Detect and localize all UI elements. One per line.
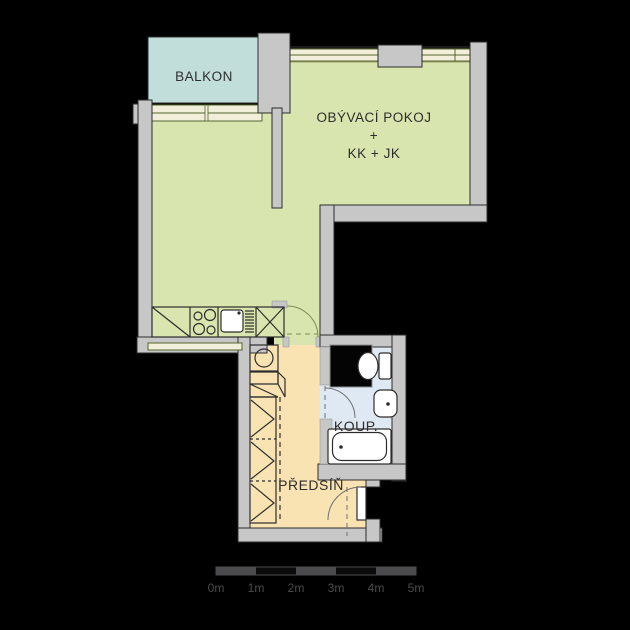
- bathtub-icon: [328, 429, 391, 464]
- living-room-label-line3: KK + JK: [348, 146, 401, 161]
- scale-label-1m: 1m: [248, 581, 265, 595]
- wall-living-bottom: [320, 205, 487, 222]
- wall-divider: [272, 108, 282, 208]
- door-jamb-left: [283, 337, 289, 347]
- washbasin-icon: [374, 390, 397, 417]
- wall-balcony-column: [258, 33, 290, 113]
- living-room-floor-left: [152, 119, 274, 337]
- scale-segment-2: [256, 567, 296, 575]
- wall-hall-bottom: [238, 528, 382, 542]
- scale-label-5m: 5m: [408, 581, 425, 595]
- balcony-label: BALKON: [175, 69, 233, 84]
- hallway-label: PŘEDSÍŇ: [278, 477, 344, 493]
- toilet-icon: [358, 353, 391, 380]
- scale-label-3m: 3m: [328, 581, 345, 595]
- entrance-door-leaf: [357, 487, 366, 520]
- balcony-window-tick: [205, 105, 208, 121]
- living-room-label-line2: +: [370, 128, 378, 143]
- scale-segment-4: [336, 567, 376, 575]
- kitchen-window: [148, 343, 242, 350]
- floor-plan-svg: BALKON OBÝVACÍ POKOJ + KK + JK KOUP. PŘE…: [0, 0, 630, 630]
- scale-segment-3: [296, 567, 336, 575]
- scale-label-2m: 2m: [288, 581, 305, 595]
- kitchen-sink-icon: [221, 310, 243, 332]
- wall-left: [138, 100, 152, 353]
- wall-top-pillar: [378, 45, 422, 67]
- wall-hall-right-lower: [366, 519, 380, 542]
- wall-hall-left: [238, 337, 250, 542]
- wall-right: [470, 42, 487, 222]
- bathroom-label: KOUP.: [334, 418, 378, 434]
- scale-segment-1: [216, 567, 256, 575]
- scale-label-4m: 4m: [368, 581, 385, 595]
- wall-notch-left: [320, 205, 334, 347]
- living-room-label-line1: OBÝVACÍ POKOJ: [316, 110, 431, 125]
- floor-plan-canvas: BALKON OBÝVACÍ POKOJ + KK + JK KOUP. PŘE…: [0, 0, 630, 630]
- scale-segment-5: [376, 567, 416, 575]
- scale-label-0m: 0m: [208, 581, 225, 595]
